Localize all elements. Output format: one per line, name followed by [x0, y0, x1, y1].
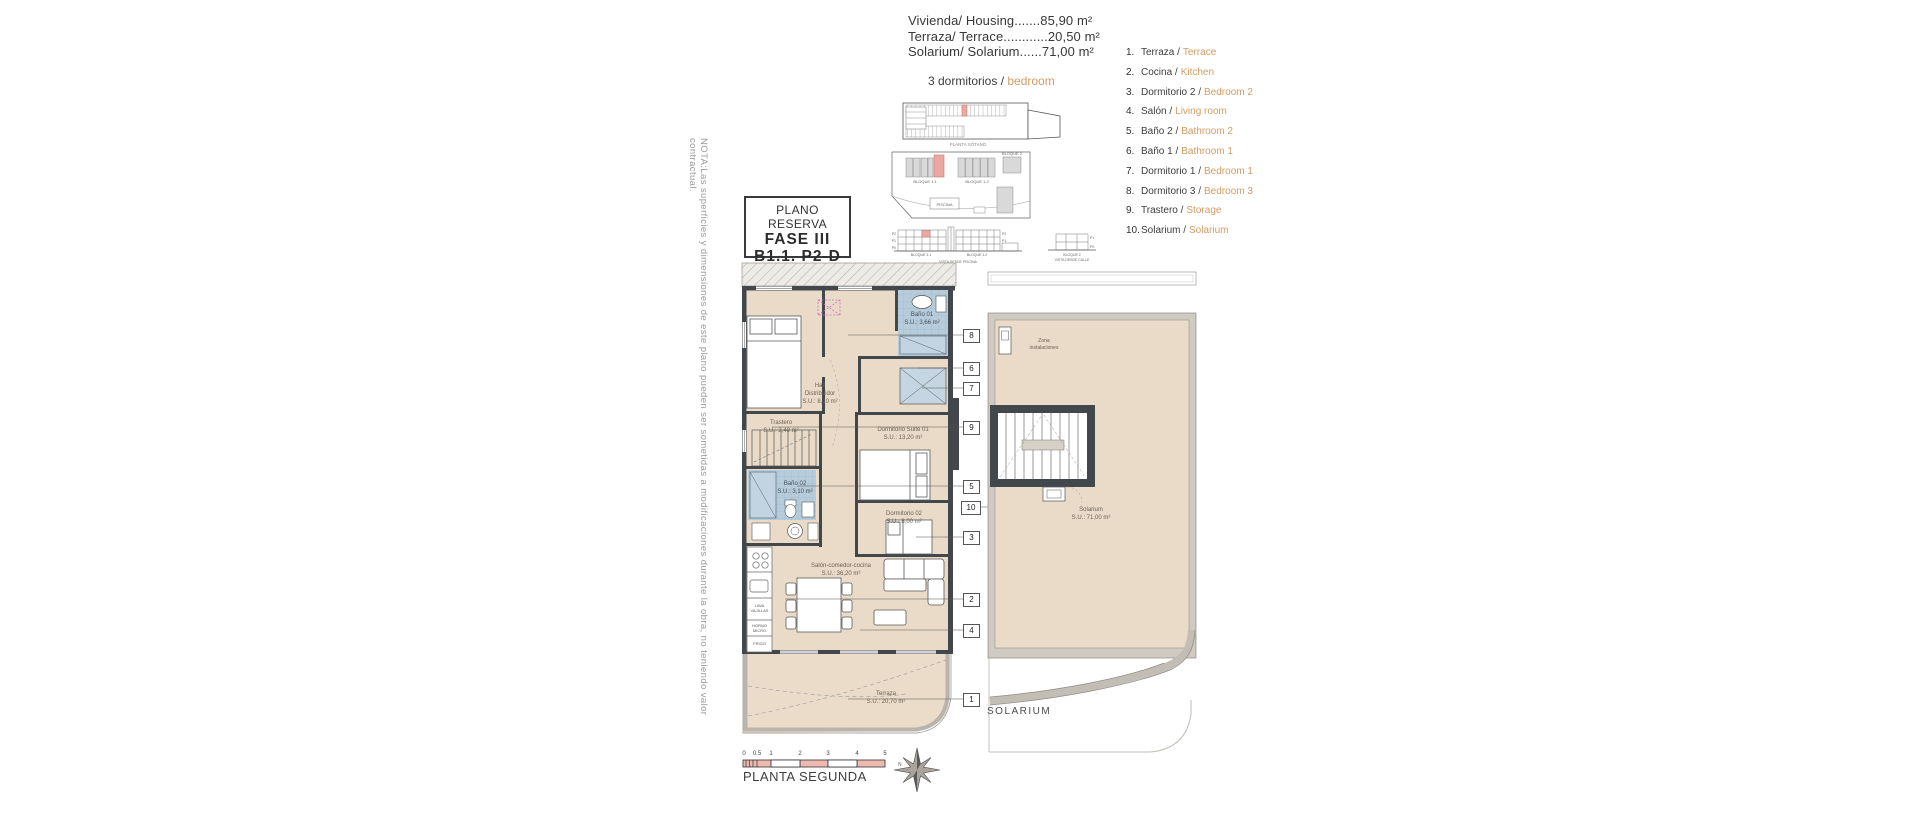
legend-item-solarium: 10.Solarium /Solarium	[1126, 225, 1253, 245]
reserve-title-block: PLANO RESERVA FASE III B1.1. P2-D	[744, 196, 851, 258]
legend-en: Solarium	[1189, 225, 1228, 236]
label-fridge: FRIGO	[747, 641, 772, 646]
disclaimer-note: NOTA:Las superficies y dimensiones de es…	[687, 138, 709, 718]
bed-suite-icon	[860, 450, 930, 500]
callout-2: 2	[963, 593, 980, 607]
floor-plan-sheet: PLANTA SÓTANO PISCINA BLOQUE 1.1 BLOQUE …	[0, 0, 1920, 837]
scale-tick-5: 5	[879, 751, 891, 757]
legend-num: 1.	[1126, 47, 1141, 58]
legend-en: Bedroom 3	[1204, 186, 1253, 197]
legend-es: Dormitorio 2 /	[1141, 87, 1201, 98]
highlighted-elevation-unit	[922, 231, 930, 238]
scale-tick-1: 1	[765, 751, 777, 757]
bloque2-elev-caption2: VISTA DESDE CALLE	[1055, 258, 1090, 262]
label-suite: Dormitorio Suite 01 S.U.: 13,20 m²	[865, 427, 941, 443]
elev-bloque12-caption: BLOQUE 1.2	[967, 253, 987, 257]
bloque2-label: BLOQUE 2	[1002, 151, 1023, 156]
callout-1: 1	[963, 693, 980, 707]
legend-en: Bathroom 2	[1181, 126, 1233, 137]
summary-solarium: Solarium/ Solarium......71,00 m²	[908, 44, 1100, 60]
legend-es: Baño 2 /	[1141, 126, 1178, 137]
bloque12-label: BLOQUE 1.2	[965, 179, 989, 184]
legend-en: Living room	[1175, 106, 1227, 117]
legend-item-dormitorio3: 8.Dormitorio 3 /Bedroom 3	[1126, 186, 1253, 206]
scale-tick-05: 0.5	[751, 751, 763, 757]
label-hall: Hall Distribuidor S.U.: 8,10 m²	[790, 383, 850, 406]
floor-label-p1-b2: P1	[1090, 236, 1094, 240]
callout-8: 8	[963, 329, 980, 343]
toilet-icon	[936, 296, 946, 312]
plano-reserva-label: PLANO RESERVA	[746, 203, 849, 231]
legend-num: 5.	[1126, 126, 1141, 137]
legend-item-trastero: 9.Trastero /Storage	[1126, 205, 1253, 225]
kitchen-counter	[747, 547, 772, 652]
highlighted-garage-stall	[962, 105, 967, 116]
label-solarium-area: Solarium S.U.: 71,00 m²	[1062, 507, 1120, 523]
legend-num: 2.	[1126, 67, 1141, 78]
legend-num: 10.	[1126, 225, 1141, 236]
legend-item-dormitorio1: 7.Dormitorio 1 /Bedroom 1	[1126, 166, 1253, 186]
legend-es: Solarium /	[1141, 225, 1186, 236]
legend-es: Dormitorio 1 /	[1141, 166, 1201, 177]
area-summary: Vivienda/ Housing.......85,90 m² Terraza…	[908, 13, 1100, 60]
legend-num: 7.	[1126, 166, 1141, 177]
kitchen-sink-icon	[750, 580, 768, 592]
site-location-diagrams: PLANTA SÓTANO PISCINA BLOQUE 1.1 BLOQUE …	[892, 103, 1096, 264]
callout-9: 9	[963, 421, 980, 435]
summary-housing: Vivienda/ Housing.......85,90 m²	[908, 13, 1100, 29]
unit-code-label: B1.1. P2-D	[746, 248, 849, 265]
solarium-caption: SOLARIUM	[987, 706, 1051, 717]
label-bathroom1: Baño 01 S.U.: 3,66 m²	[893, 312, 951, 328]
legend-es: Dormitorio 3 /	[1141, 186, 1201, 197]
scale-tick-3: 3	[822, 751, 834, 757]
scale-tick-0: 0	[738, 751, 750, 757]
site-key-plan-diagram: PISCINA BLOQUE 1.1 BLOQUE 1.2 BLOQUE 2	[892, 151, 1030, 218]
callout-4: 4	[963, 624, 980, 638]
callout-7: 7	[963, 382, 980, 396]
label-installations-zone: Zona instalaciones	[1018, 338, 1070, 351]
legend-num: 4.	[1126, 106, 1141, 117]
sink-icon	[912, 296, 932, 309]
garage-caption: PLANTA SÓTANO	[950, 141, 987, 147]
floor-label-p2-right: P2	[1002, 232, 1006, 236]
floor-label-p1: P1	[892, 239, 896, 243]
legend-en: Terrace	[1183, 47, 1216, 58]
summary-terrace: Terraza/ Terrace............20,50 m²	[908, 29, 1100, 45]
north-label: N	[898, 762, 902, 768]
bloque2-elev-caption1: BLOQUE 2	[1063, 253, 1081, 257]
garage-plan-diagram: PLANTA SÓTANO	[903, 103, 1060, 147]
scale-tick-2: 2	[794, 751, 806, 757]
callout-6: 6	[963, 362, 980, 376]
legend-item-bano1: 6.Baño 1 /Bathroom 1	[1126, 146, 1253, 166]
elev-bloque11-caption: BLOQUE 1.1	[911, 253, 931, 257]
legend-es: Baño 1 /	[1141, 146, 1178, 157]
elevation-diagram: P2 P1 P0 P2 P1 P1 P0 BLOQUE 1.1 BLOQUE 1…	[892, 227, 1096, 264]
washer-icon	[788, 524, 803, 539]
fase-label: FASE III	[746, 231, 849, 248]
piscina-label: PISCINA	[936, 202, 952, 207]
label-terrace: Terraza S.U.: 20,70 m²	[852, 691, 920, 707]
highlighted-unit	[934, 155, 944, 177]
bedrooms-en: bedroom	[1007, 74, 1054, 88]
legend-es: Cocina /	[1141, 67, 1178, 78]
label-dishwasher: LAVA VAJILLAS	[747, 603, 772, 613]
sink2-icon	[802, 502, 814, 517]
bloque11-label: BLOQUE 1.1	[913, 179, 937, 184]
room-legend: 1.Terraza /Terrace 2.Cocina /Kitchen 3.D…	[1126, 47, 1253, 245]
legend-en: Storage	[1186, 205, 1221, 216]
legend-en: Bathroom 1	[1181, 146, 1233, 157]
hob-icon	[753, 553, 759, 559]
scale-bar	[743, 760, 885, 767]
floor-label-p1-right: P1	[1002, 239, 1006, 243]
scale-tick-4: 4	[851, 751, 863, 757]
toilet2-icon	[785, 505, 796, 518]
label-oven: HORNO MICRO	[747, 623, 772, 633]
legend-num: 6.	[1126, 146, 1141, 157]
legend-num: 8.	[1126, 186, 1141, 197]
callout-3: 3	[963, 531, 980, 545]
floor-label-p0: P0	[892, 246, 896, 250]
legend-en: Bedroom 2	[1204, 87, 1253, 98]
legend-item-bano2: 5.Baño 2 /Bathroom 2	[1126, 126, 1253, 146]
legend-en: Kitchen	[1181, 67, 1214, 78]
plan-drawing: PLANTA SÓTANO PISCINA BLOQUE 1.1 BLOQUE …	[0, 0, 1920, 837]
bedrooms-line: 3 dormitorios / bedroom	[928, 74, 1055, 88]
legend-item-terraza: 1.Terraza /Terrace	[1126, 47, 1253, 67]
label-living-kitchen: Salón-comedor-cocina S.U.: 36,20 m²	[806, 563, 876, 579]
legend-num: 9.	[1126, 205, 1141, 216]
neighbor-hatch-strip	[742, 263, 956, 286]
floor-label-p0-b2: P0	[1090, 245, 1094, 249]
dining-table-icon	[786, 578, 852, 632]
installations-fixture	[999, 327, 1011, 354]
wardrobe-icon	[900, 368, 946, 404]
label-bedroom2: Dormitorio 02 S.U.: 8,00 m²	[873, 511, 935, 527]
callout-10: 10	[961, 501, 981, 515]
label-bathroom2: Baño 02 S.U.: 3,10 m²	[772, 481, 818, 497]
bedrooms-es: 3 dormitorios /	[928, 74, 1007, 88]
plan-title: PLANTA SEGUNDA	[743, 769, 867, 784]
legend-en: Bedroom 1	[1204, 166, 1253, 177]
label-storage: Trastero S.U.: 2,48 m²	[752, 420, 810, 436]
legend-num: 3.	[1126, 87, 1141, 98]
coffee-table-icon	[874, 610, 906, 625]
legend-es: Salón /	[1141, 106, 1172, 117]
floor-label-p2: P2	[892, 232, 896, 236]
legend-item-cocina: 2.Cocina /Kitchen	[1126, 67, 1253, 87]
callout-5: 5	[963, 480, 980, 494]
legend-es: Terraza /	[1141, 47, 1180, 58]
legend-item-dormitorio2: 3.Dormitorio 2 /Bedroom 2	[1126, 87, 1253, 107]
compass-rose-icon: N	[894, 748, 940, 792]
legend-item-salon: 4.Salón /Living room	[1126, 106, 1253, 126]
legend-es: Trastero /	[1141, 205, 1183, 216]
